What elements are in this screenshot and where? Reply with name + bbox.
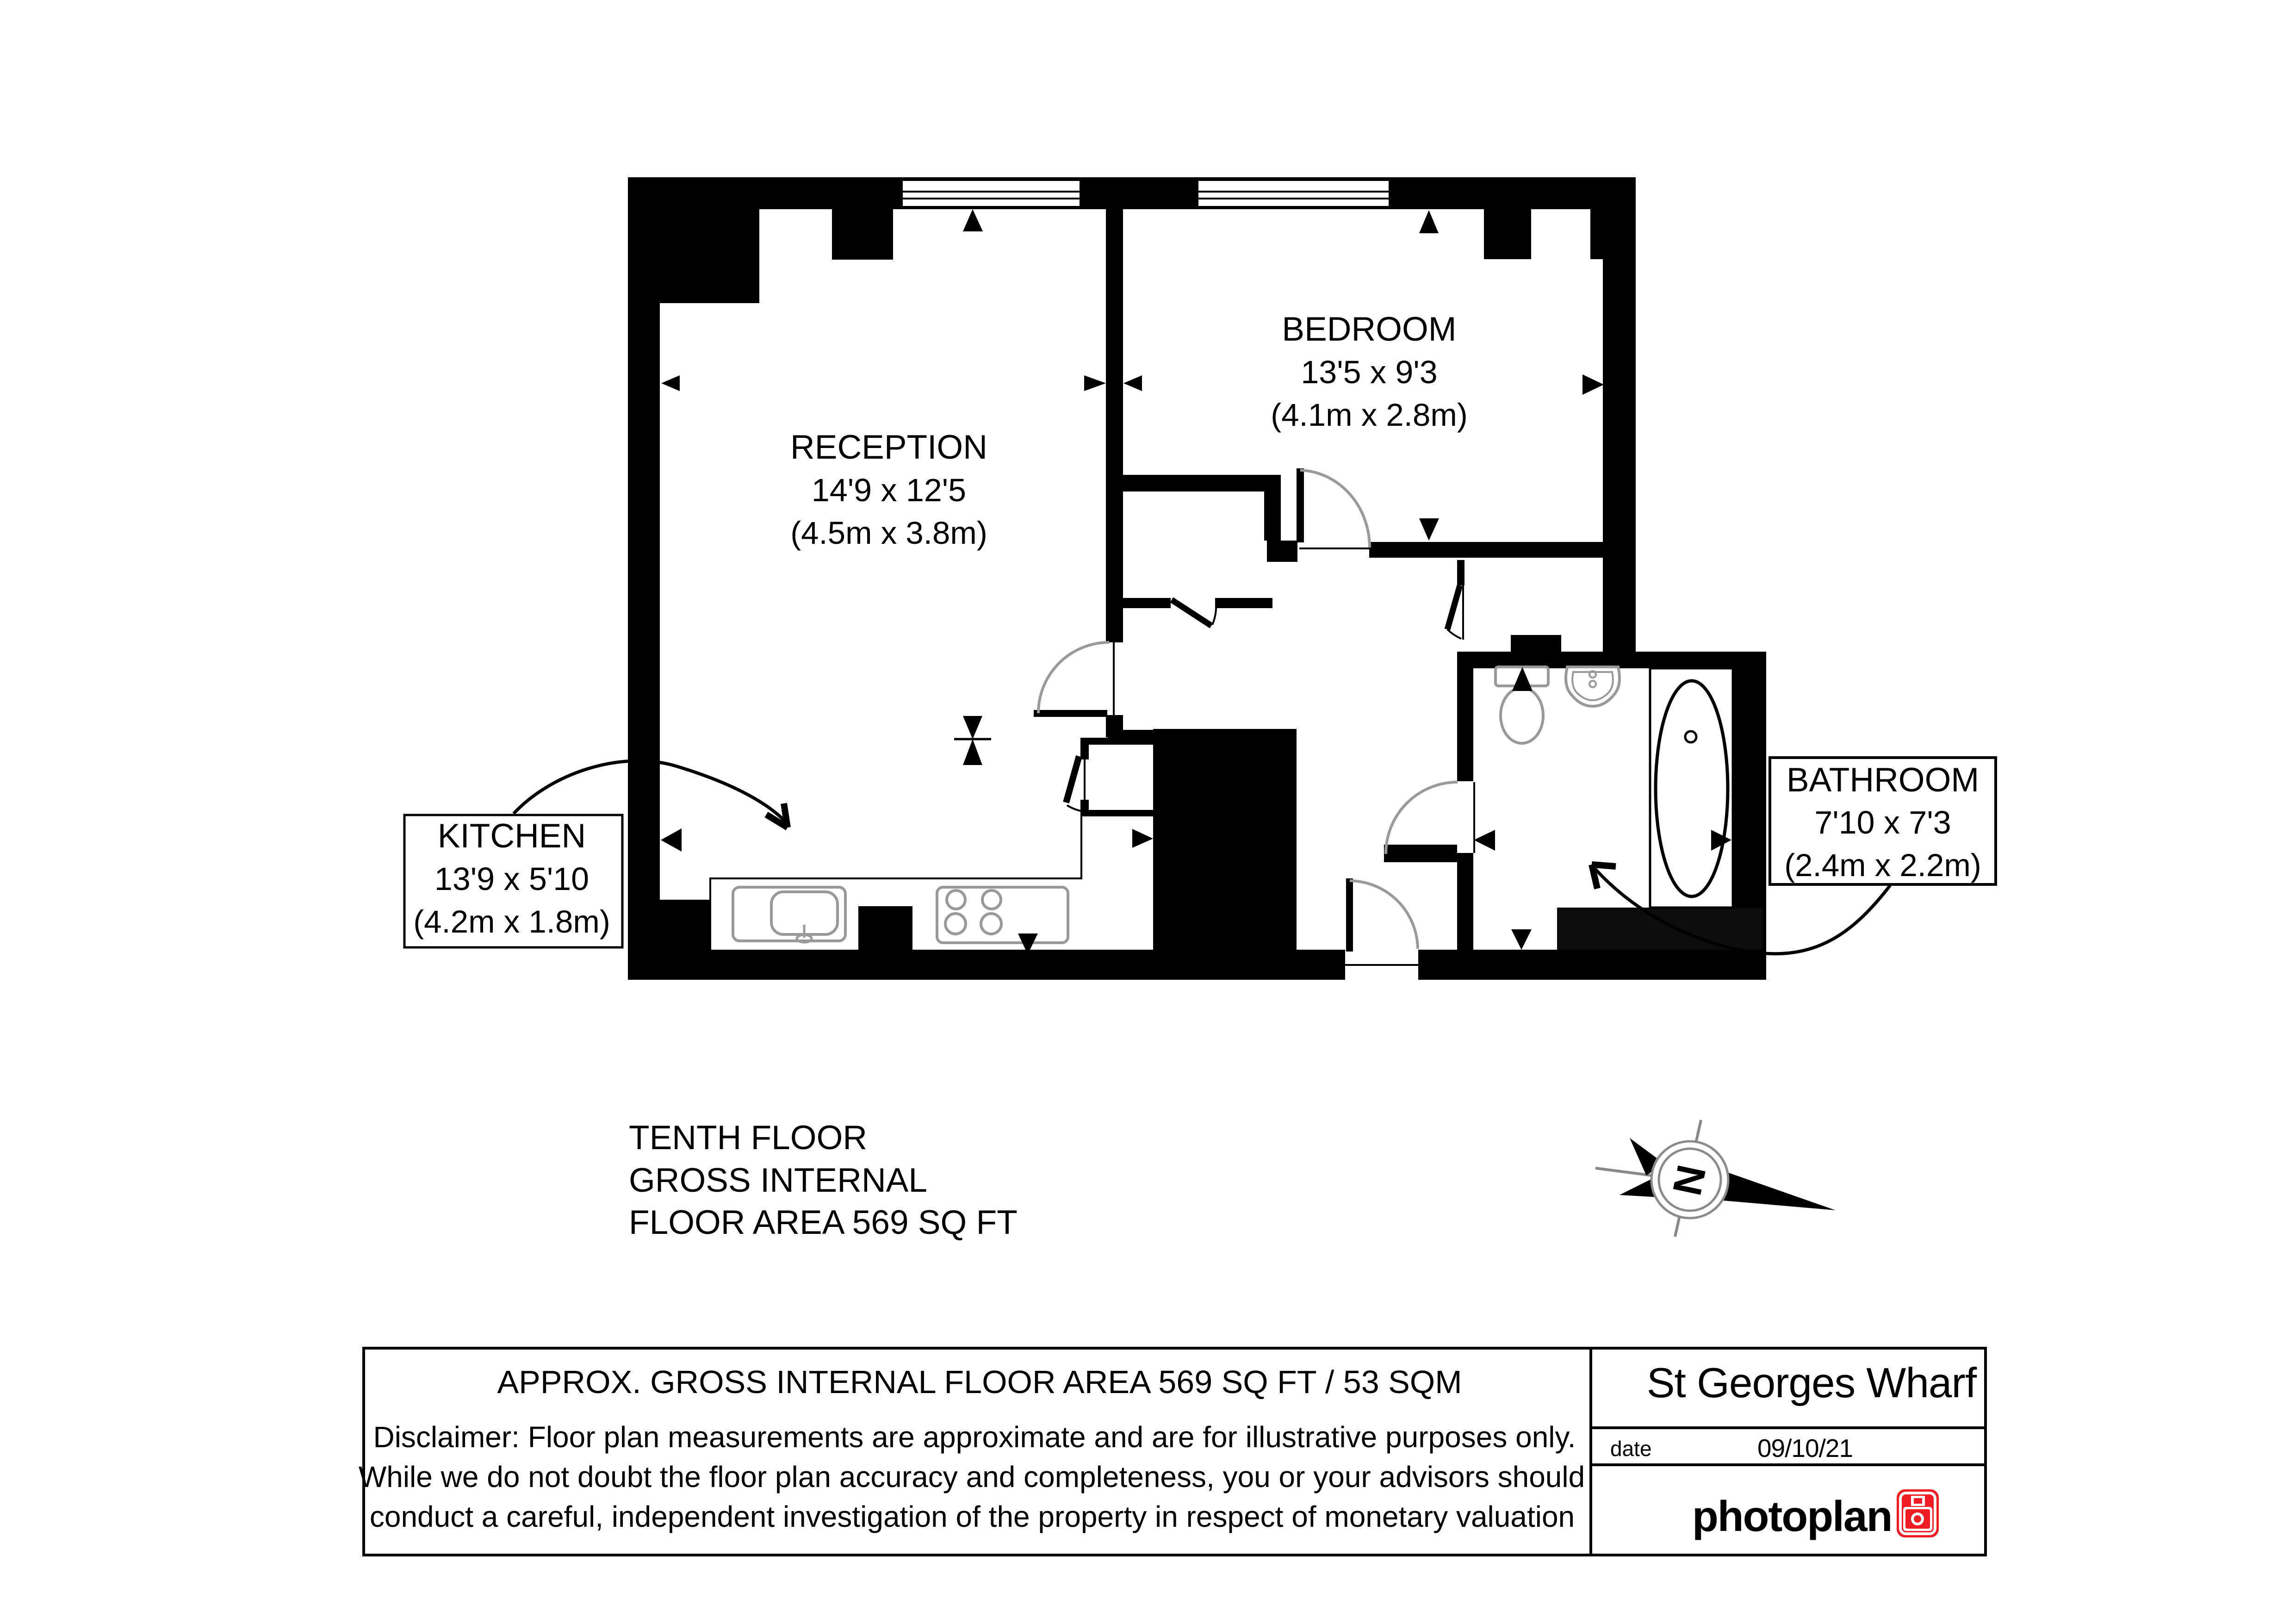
svg-text:BEDROOM: BEDROOM [1282,311,1456,348]
svg-text:(4.5m x 3.8m): (4.5m x 3.8m) [790,515,987,551]
svg-text:(4.1m x 2.8m): (4.1m x 2.8m) [1271,397,1468,433]
svg-text:13'9 x 5'10: 13'9 x 5'10 [434,861,589,897]
svg-text:BATHROOM: BATHROOM [1787,761,1979,799]
svg-text:(2.4m x 2.2m): (2.4m x 2.2m) [1784,847,1981,883]
svg-text:date: date [1610,1437,1652,1461]
svg-text:APPROX. GROSS INTERNAL FLOOR A: APPROX. GROSS INTERNAL FLOOR AREA 569 SQ… [497,1364,1462,1400]
svg-text:RECEPTION: RECEPTION [790,429,987,466]
svg-text:09/10/21: 09/10/21 [1757,1434,1853,1462]
svg-text:TENTH FLOOR: TENTH FLOOR [629,1119,867,1157]
svg-text:14'9 x 12'5: 14'9 x 12'5 [812,472,966,508]
svg-text:photoplan: photoplan [1692,1492,1892,1540]
svg-text:Disclaimer: Floor plan measure: Disclaimer: Floor plan measurements are … [373,1420,1576,1454]
svg-text:conduct a careful, independent: conduct a careful, independent investiga… [370,1500,1575,1533]
svg-text:(4.2m x 1.8m): (4.2m x 1.8m) [413,904,610,940]
svg-text:KITCHEN: KITCHEN [438,817,586,855]
svg-text:GROSS INTERNAL: GROSS INTERNAL [629,1162,927,1199]
svg-text:13'5 x 9'3: 13'5 x 9'3 [1301,354,1437,390]
svg-text:While we do not doubt the floo: While we do not doubt the floor plan acc… [359,1460,1585,1493]
svg-text:7'10 x 7'3: 7'10 x 7'3 [1814,804,1951,840]
svg-text:St Georges Wharf: St Georges Wharf [1647,1360,1977,1406]
svg-text:FLOOR AREA 569 SQ FT: FLOOR AREA 569 SQ FT [629,1204,1018,1241]
